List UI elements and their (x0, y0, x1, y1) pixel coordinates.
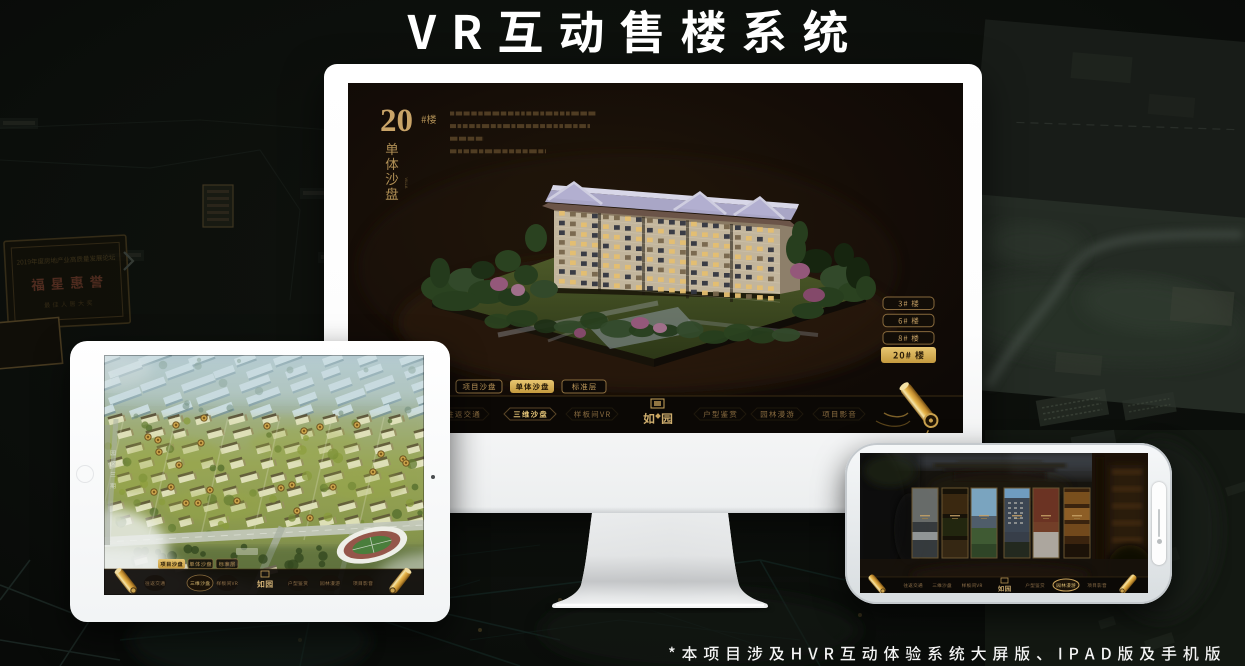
svg-text:20: 20 (380, 103, 413, 139)
svg-text:VILLA: VILLA (404, 178, 409, 189)
